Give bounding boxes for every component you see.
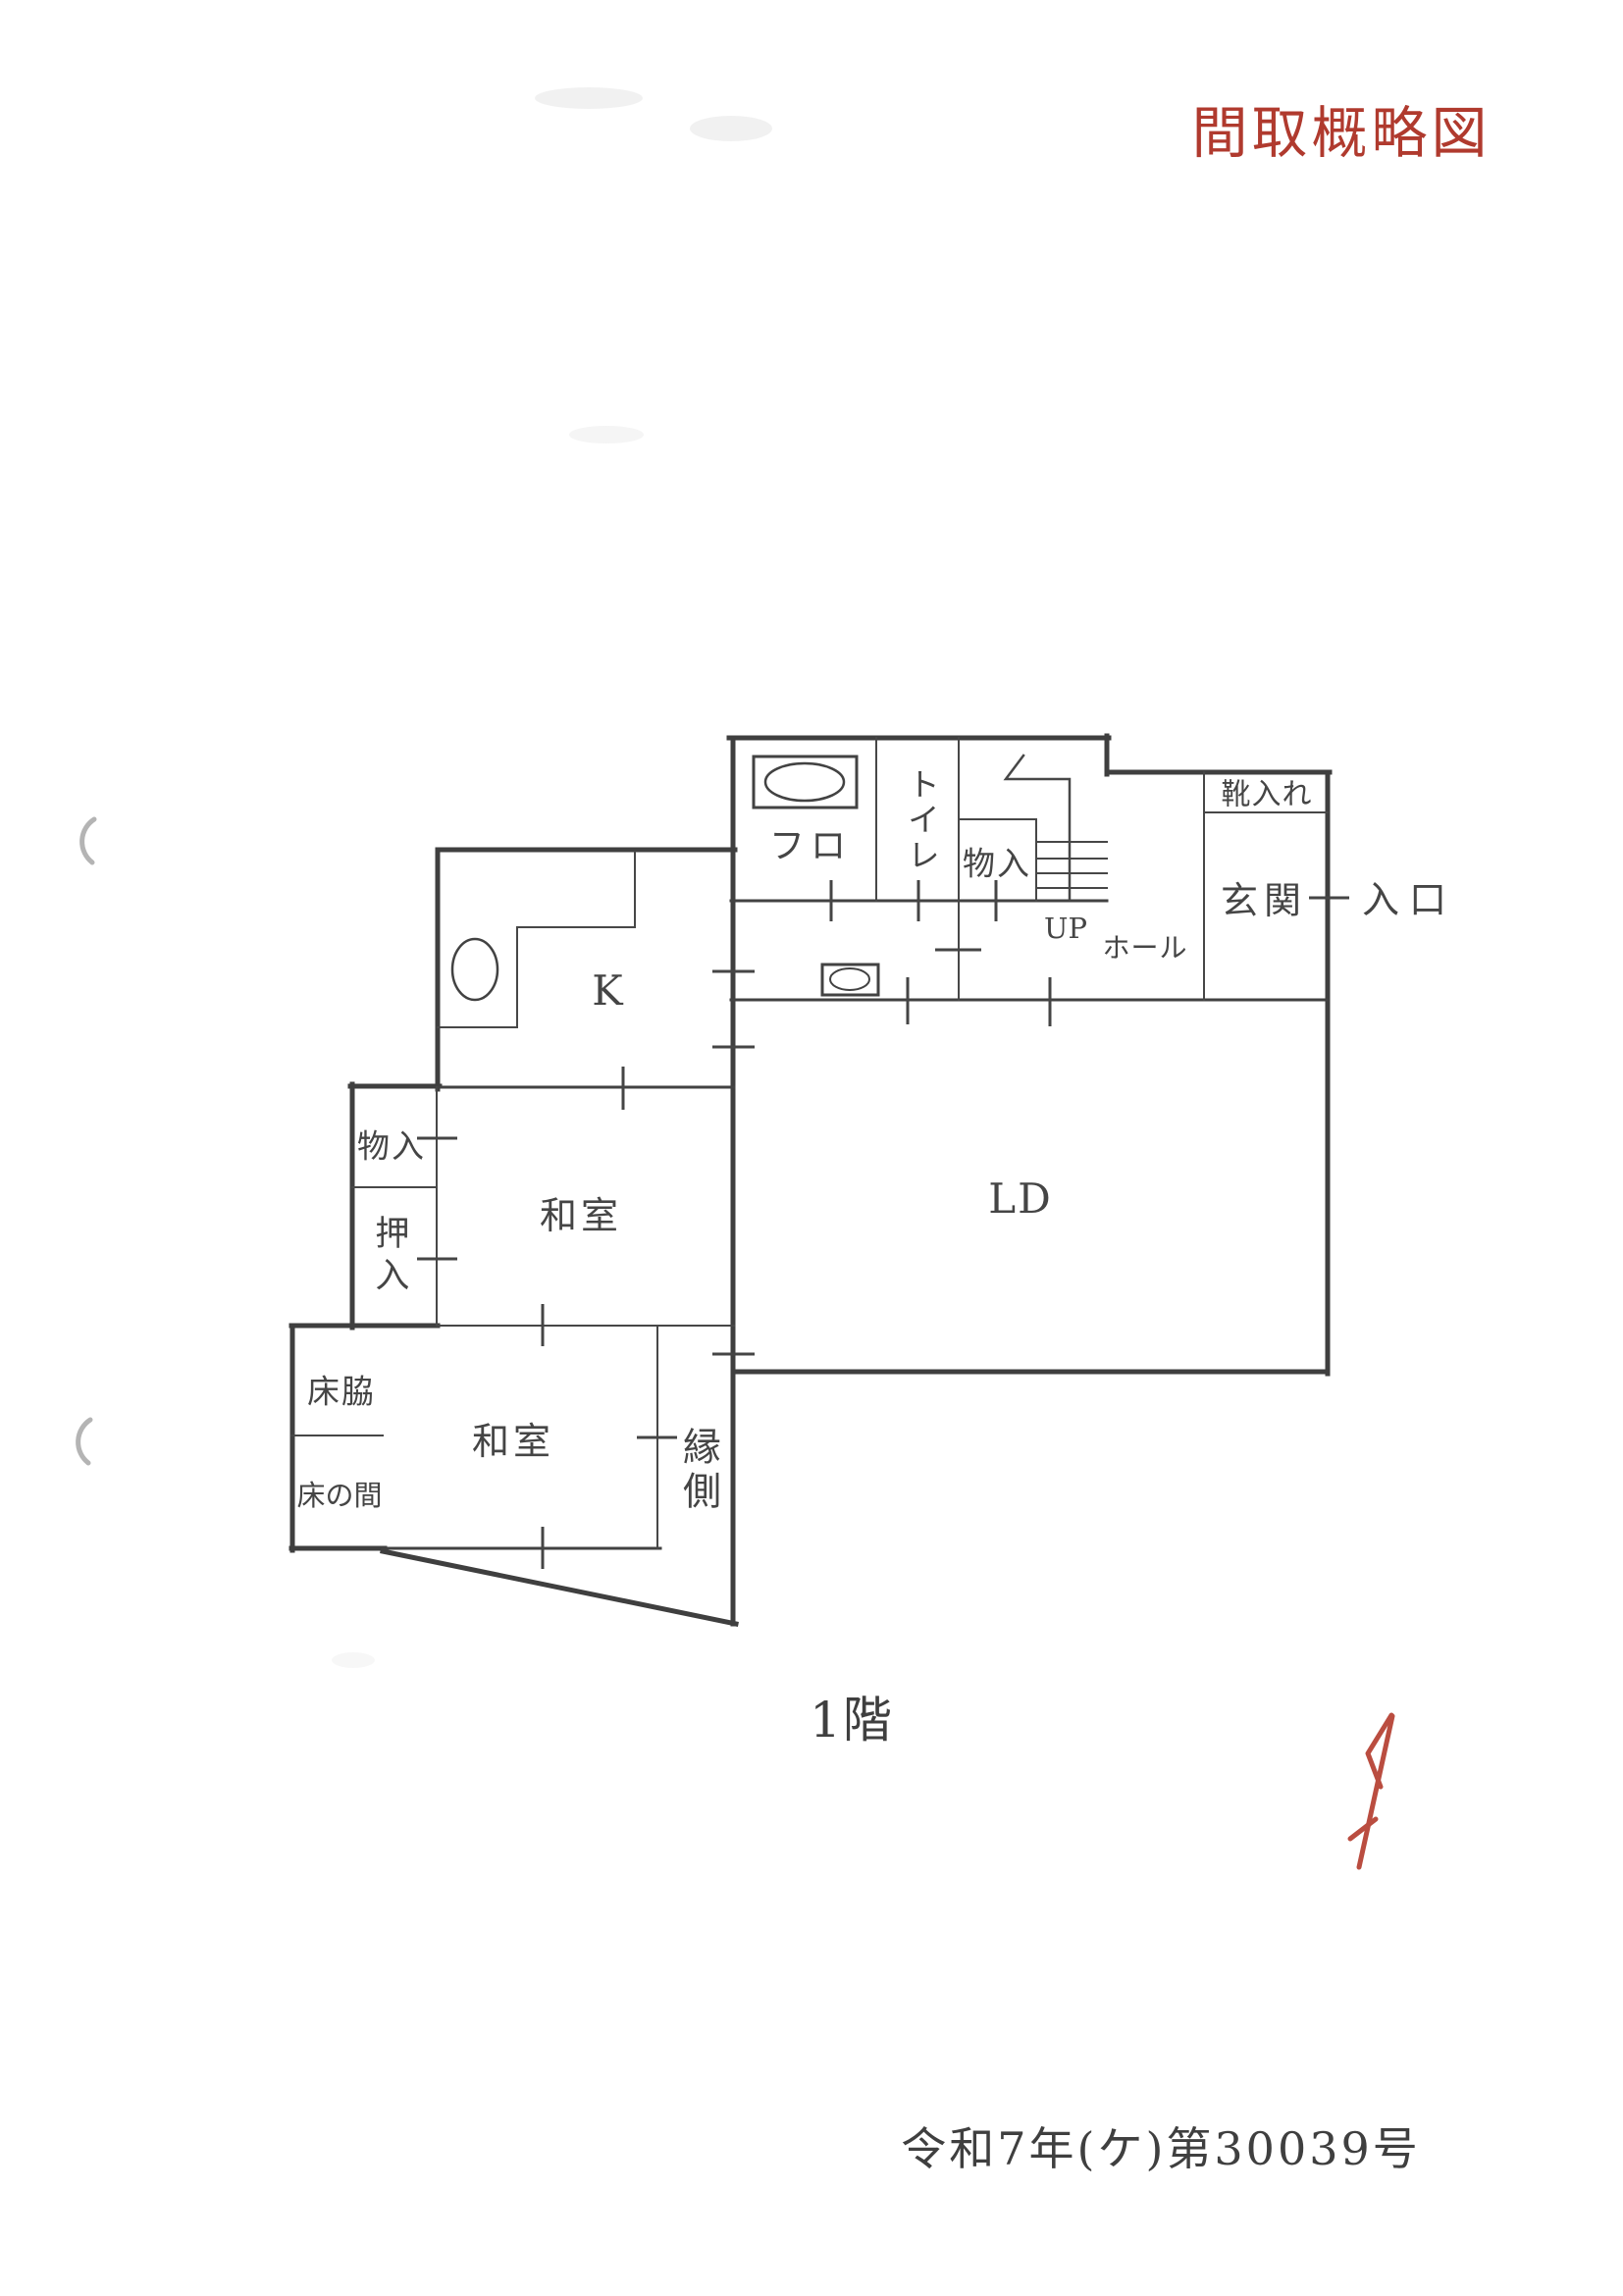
stairs-up-label: UP <box>1044 913 1087 943</box>
punch-hole-icon <box>79 819 94 1463</box>
room-label-kitchen: K <box>592 969 622 1013</box>
room-label-living-dining: LD <box>988 1177 1053 1221</box>
room-label-closet: 押入 <box>371 1215 407 1299</box>
page-title: 間取概略図 <box>1192 105 1492 164</box>
room-label-tokowaki: 床脇 <box>307 1376 376 1410</box>
handwritten-red-mark <box>1350 1715 1392 1867</box>
bathtub-icon <box>754 757 857 808</box>
room-label-storage-side: 物入 <box>357 1130 426 1165</box>
room-label-hall: ホール <box>1102 933 1187 962</box>
floorplan-drawing <box>0 0 1623 2296</box>
room-label-tokonoma: 床の間 <box>296 1481 382 1510</box>
washbasin-icon <box>822 965 878 995</box>
case-number: 令和7年(ケ)第30039号 <box>901 2125 1421 2172</box>
exterior-walls <box>291 736 1330 1624</box>
room-label-engawa: 縁側 <box>678 1427 718 1515</box>
room-label-japanese-room-1: 和室 <box>540 1197 622 1236</box>
room-label-storage-upper: 物入 <box>963 848 1031 882</box>
room-label-shoe-cabinet: 靴入れ <box>1222 779 1313 810</box>
entrance-label: 入口 <box>1362 881 1456 920</box>
kitchen-sink-icon <box>452 939 497 1000</box>
room-label-japanese-room-2: 和室 <box>472 1423 554 1462</box>
floor-caption: 1階 <box>810 1695 894 1747</box>
room-label-toilet: トイレ <box>904 767 938 873</box>
room-label-bath: フロ <box>769 828 852 865</box>
room-label-entrance-hall: 玄関 <box>1221 882 1307 921</box>
scanned-floorplan-page: 間取概略図 フロ トイレ 物入 UP ホール 靴入れ 玄関 入口 K LD 和室… <box>0 0 1623 2296</box>
